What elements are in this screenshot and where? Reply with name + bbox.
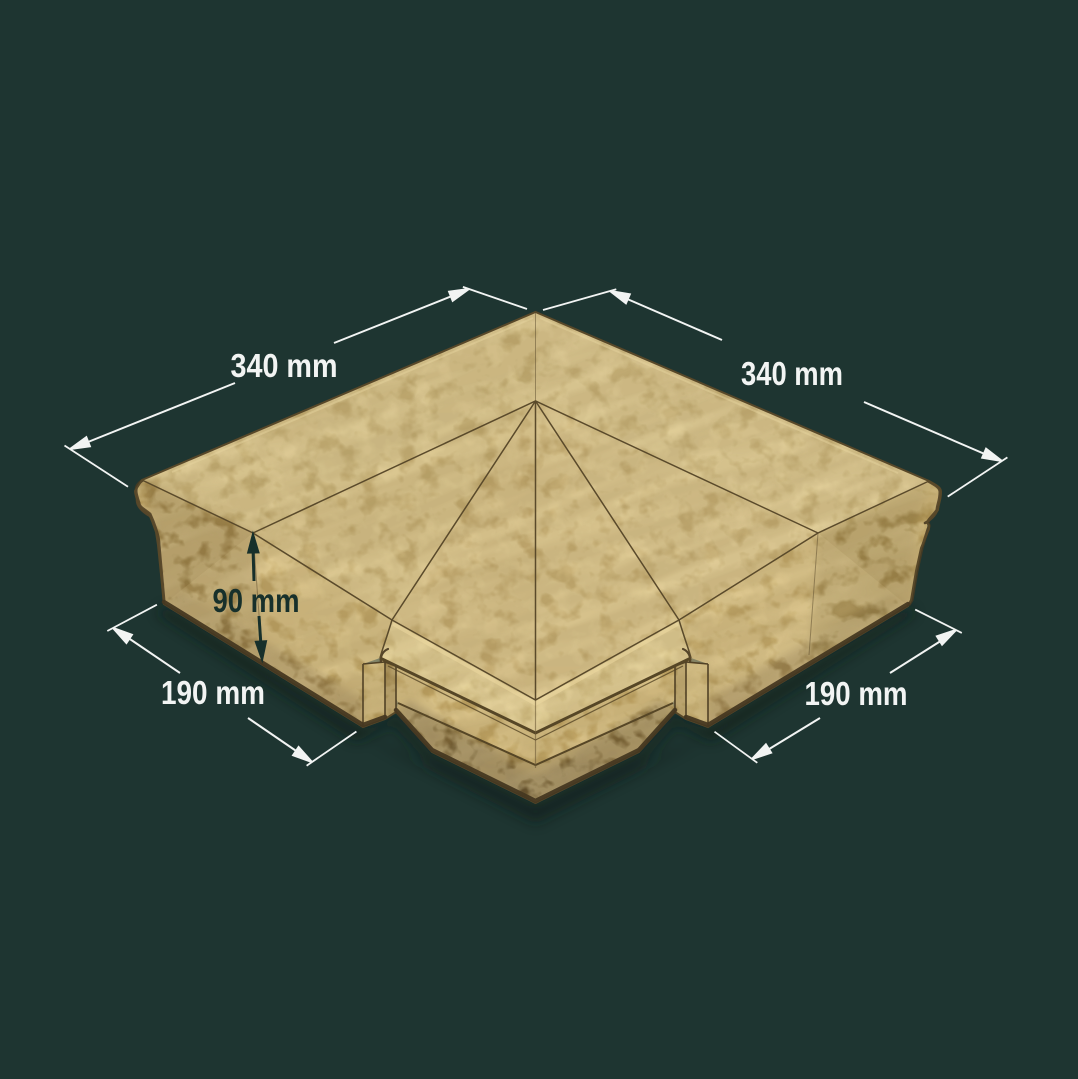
svg-text:190 mm: 190 mm bbox=[805, 675, 908, 712]
svg-text:340 mm: 340 mm bbox=[741, 355, 843, 392]
svg-text:190 mm: 190 mm bbox=[161, 674, 265, 711]
svg-text:90 mm: 90 mm bbox=[213, 582, 300, 619]
svg-text:340 mm: 340 mm bbox=[231, 347, 338, 384]
